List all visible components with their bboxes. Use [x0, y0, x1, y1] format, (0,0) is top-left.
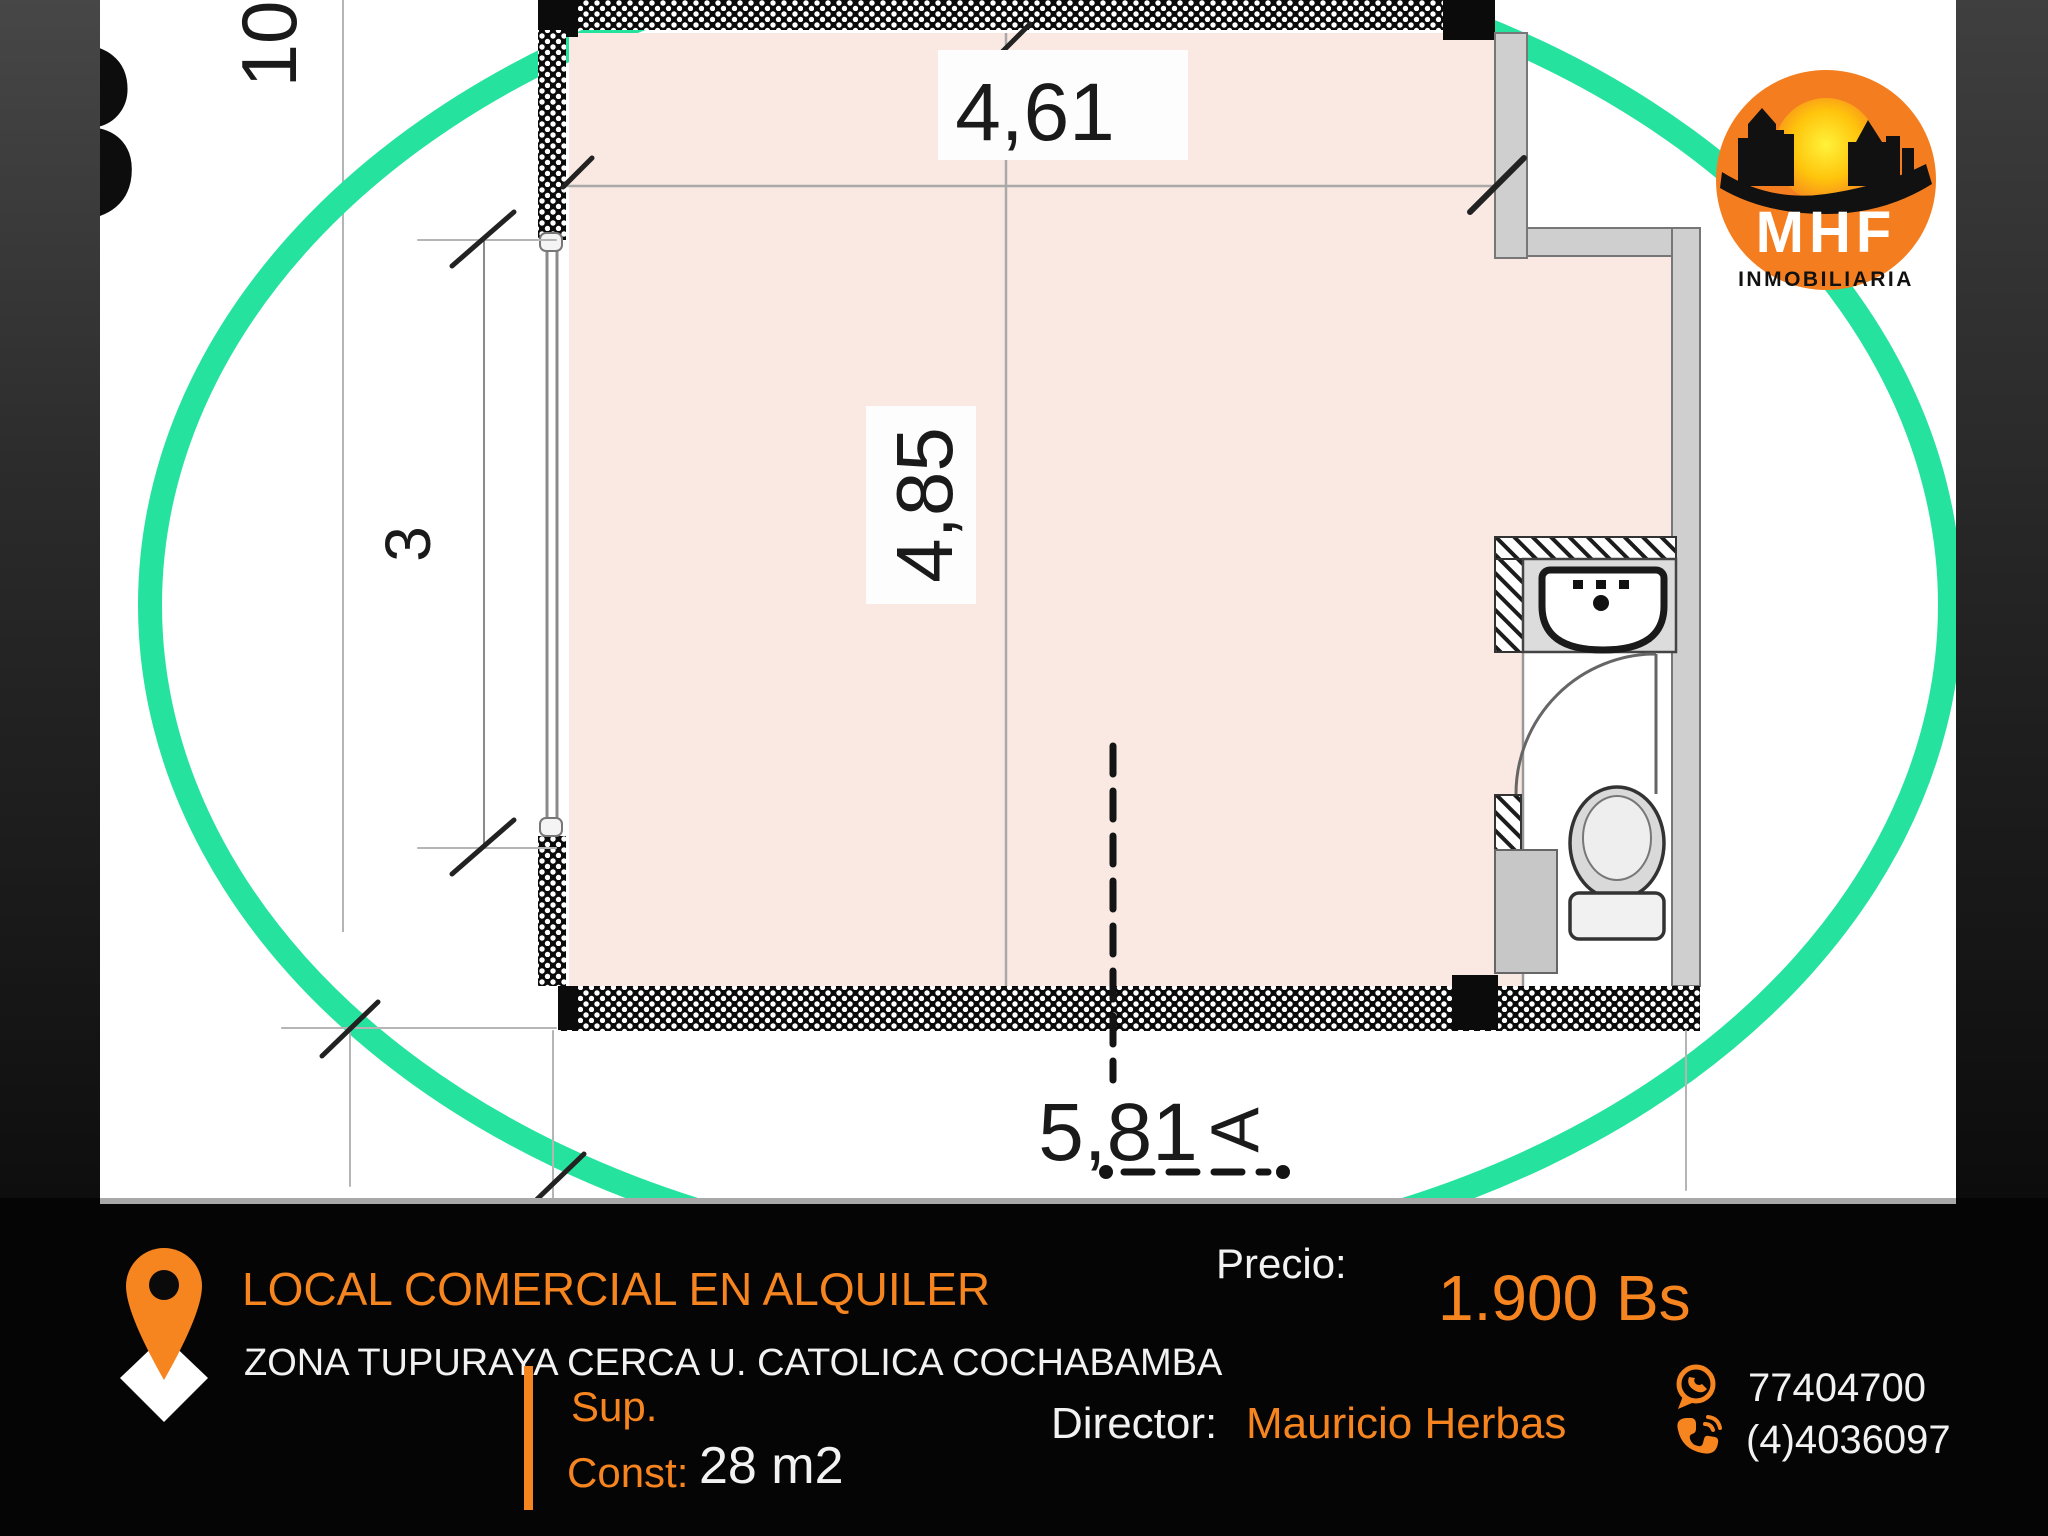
wall-cap-bottomleft [558, 986, 578, 1030]
const-label: Const: [567, 1452, 688, 1494]
left-dark-margin [0, 0, 100, 1198]
toilet-tank [1570, 893, 1664, 939]
whatsapp-number: 77404700 [1748, 1368, 1926, 1408]
mhf-logo: MHF INMOBILIARIA [1716, 70, 1936, 291]
section-line-dot [1099, 1165, 1113, 1179]
dim-label-10: 10 [225, 1, 313, 88]
dim-label-top-width: 4,61 [955, 67, 1115, 158]
window-end-knob [540, 233, 562, 251]
price-value: 1.900 Bs [1438, 1266, 1691, 1330]
logo-subtitle-text: INMOBILIARIA [1738, 268, 1914, 291]
faucet-hole [1573, 580, 1583, 589]
listing-title: LOCAL COMERCIAL EN ALQUILER [242, 1266, 990, 1312]
floorplan-canvas: 8 10 [100, 0, 1956, 1198]
bathroom-cabinet [1495, 850, 1557, 973]
location-pin-icon [112, 1240, 222, 1430]
wall-bottom [558, 986, 1700, 1031]
price-label: Precio: [1216, 1243, 1347, 1285]
logo-brand-text: MHF [1756, 200, 1897, 265]
orange-divider-bar [524, 1366, 533, 1510]
wall-top [566, 0, 1443, 30]
whatsapp-icon [1670, 1360, 1722, 1412]
wall-left-upper [538, 30, 566, 240]
sink-drain [1593, 595, 1609, 611]
wall-cap-topright [1443, 0, 1495, 40]
dim-label-left: 3 [372, 526, 444, 562]
phone-icon [1672, 1414, 1726, 1464]
real-estate-flyer: 8 10 [0, 0, 2048, 1536]
wall-right-upper [1495, 33, 1527, 258]
window-end-knob [540, 818, 562, 836]
area-value: 28 m2 [699, 1440, 844, 1492]
section-marker-a: A [1197, 1107, 1273, 1153]
vanity-back-hatch [1495, 537, 1676, 559]
band-divider-line [100, 1198, 1956, 1204]
section-line-dot [1276, 1165, 1290, 1179]
dim-label-room-height: 4,85 [880, 427, 969, 583]
landline-number: (4)4036097 [1746, 1420, 1951, 1460]
surface-label: Sup. [571, 1386, 657, 1428]
listing-subtitle: ZONA TUPURAYA CERCA U. CATOLICA COCHABAM… [244, 1344, 1222, 1382]
cropped-edge-digit: 8 [100, 0, 140, 271]
vanity-side-hatch [1495, 559, 1523, 652]
wall-post-hatch [1495, 795, 1521, 852]
wall-left-lower [538, 836, 566, 986]
director-label: Director: [1051, 1402, 1217, 1446]
faucet-hole [1596, 580, 1606, 589]
faucet-hole [1619, 580, 1629, 589]
wall-pier-bottomright [1452, 975, 1498, 1030]
toilet-bowl-inner [1583, 796, 1651, 880]
right-dark-margin [1956, 0, 2048, 1198]
dim-label-bottom-width: 5,81 [1038, 1087, 1198, 1178]
director-name: Mauricio Herbas [1246, 1402, 1566, 1446]
